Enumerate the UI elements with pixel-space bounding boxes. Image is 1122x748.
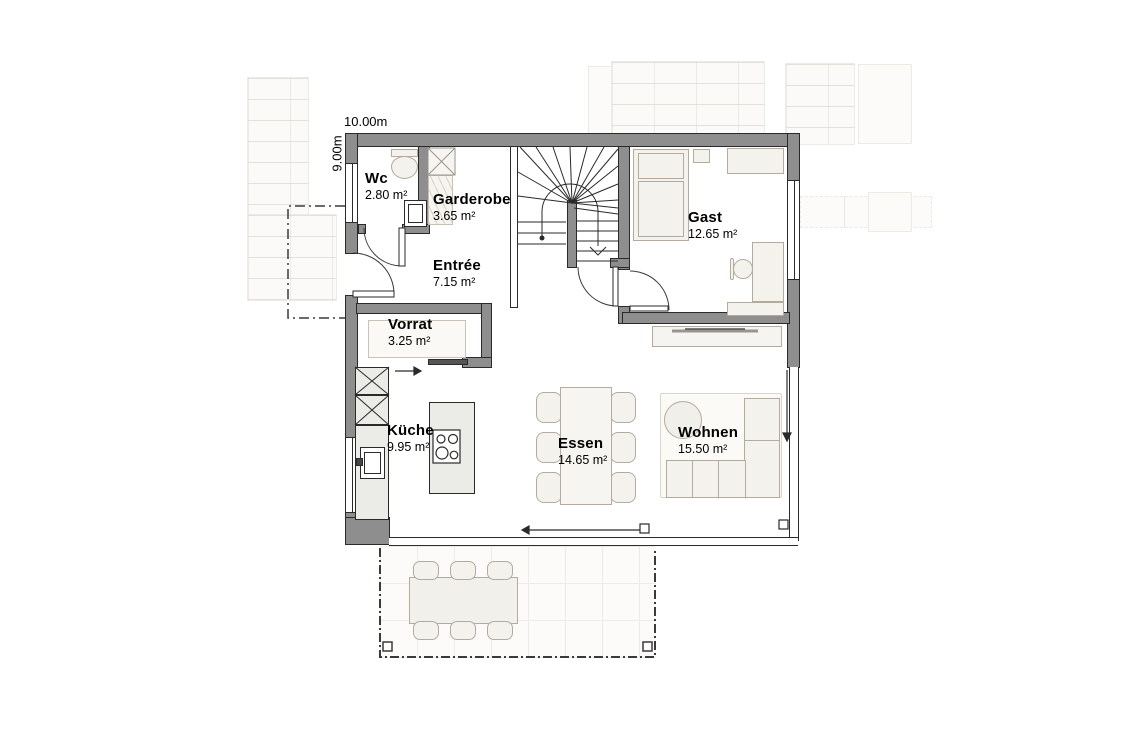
terrace-chair (487, 561, 513, 580)
room-label-garderobe: Garderobe 3.65 m² (433, 192, 511, 223)
gast-bed-pillow (638, 153, 684, 179)
room-area: 7.15 m² (433, 275, 481, 289)
room-area: 2.80 m² (365, 188, 407, 202)
wall-vorrat-north (356, 303, 492, 314)
kueche-tall-unit (355, 367, 389, 395)
room-name: Essen (558, 436, 607, 453)
room-name: Garderobe (433, 192, 511, 209)
wall-stair-west (510, 146, 518, 308)
kueche-faucet (356, 458, 363, 466)
gast-desk-chair-back (730, 258, 734, 280)
dimension-height: 9.00m (330, 129, 345, 179)
wohnen-sofa-bottom (666, 460, 746, 498)
terrace-chair (450, 561, 476, 580)
gast-bed-mattress (638, 181, 684, 237)
paving-top-center (612, 62, 764, 144)
wohnen-sofa-seam (718, 461, 719, 497)
room-name: Wohnen (678, 425, 738, 442)
gast-wardrobe (727, 148, 784, 174)
gast-nightstand (693, 149, 710, 163)
room-name: Wc (365, 171, 407, 188)
essen-chair (610, 392, 636, 423)
room-area: 3.25 m² (388, 334, 432, 348)
room-area: 14.65 m² (558, 453, 607, 467)
room-label-wohnen: Wohnen 15.50 m² (678, 425, 738, 456)
room-label-wc: Wc 2.80 m² (365, 171, 407, 202)
wall-east-seg (787, 133, 800, 181)
paving-right-block (868, 192, 912, 232)
wall-west-seg (345, 133, 358, 165)
kueche-sink-basin (364, 452, 381, 474)
gast-desk-chair (733, 259, 753, 279)
terrace-chair (413, 621, 439, 640)
gast-shelf (727, 302, 784, 316)
terrace-chair (413, 561, 439, 580)
paving-top-tab (588, 66, 612, 142)
room-label-vorrat: Vorrat 3.25 m² (388, 317, 432, 348)
terrace-table (409, 577, 518, 624)
glass-front-south (389, 537, 798, 546)
room-label-entree: Entrée 7.15 m² (433, 258, 481, 289)
kueche-tall-unit (355, 395, 389, 425)
window-gast (787, 180, 800, 280)
room-label-gast: Gast 12.65 m² (688, 210, 737, 241)
essen-chair (610, 472, 636, 503)
kueche-island (429, 402, 475, 494)
room-area: 9.95 m² (387, 440, 434, 454)
essen-chair (610, 432, 636, 463)
wall-southwest-pier (345, 517, 390, 545)
sideboard-tv (652, 326, 782, 347)
essen-chair (536, 472, 562, 503)
room-name: Vorrat (388, 317, 432, 334)
gast-desk (752, 242, 784, 302)
paving-far-right-top (858, 64, 912, 144)
paving-right-row (800, 196, 932, 228)
room-area: 12.65 m² (688, 227, 737, 241)
room-name: Küche (387, 423, 434, 440)
wohnen-sofa-seam (692, 461, 693, 497)
room-name: Entrée (433, 258, 481, 275)
wc-sink-basin (408, 204, 423, 223)
terrace-chair (450, 621, 476, 640)
terrace-chair (487, 621, 513, 640)
window-wc (345, 163, 358, 223)
vorrat-sliding-panel (428, 359, 468, 365)
room-area: 3.65 m² (433, 209, 511, 223)
dimension-width: 10.00m (344, 114, 387, 129)
paving-top-right (786, 64, 854, 144)
paving-left-path-wide (248, 215, 336, 300)
room-label-essen: Essen 14.65 m² (558, 436, 607, 467)
wall-west-seg (345, 222, 358, 254)
wall-north (345, 133, 800, 147)
wohnen-sofa-right (744, 398, 780, 498)
floor-plan-canvas: 10.00m 9.00m Wc 2.80 m² Garderobe 3.65 m… (0, 0, 1122, 748)
wall-stair-door-jamb (610, 258, 630, 268)
wall-wc-south-jamb (358, 224, 366, 234)
wall-stair-east (618, 146, 630, 270)
room-name: Gast (688, 210, 737, 227)
wohnen-sofa-seam (745, 440, 779, 441)
room-area: 15.50 m² (678, 442, 738, 456)
glass-front-east (789, 367, 799, 541)
wall-stair-newel (567, 200, 577, 268)
essen-chair (536, 392, 562, 423)
room-label-kueche: Küche 9.95 m² (387, 423, 434, 454)
